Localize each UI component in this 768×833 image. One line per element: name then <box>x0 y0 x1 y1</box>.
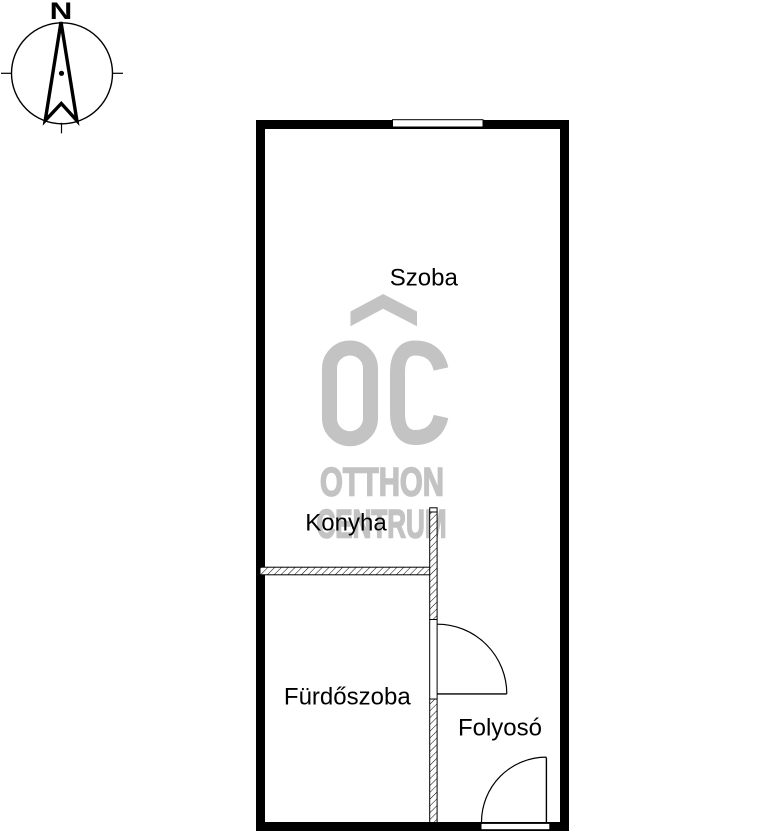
svg-text:OTTHON: OTTHON <box>320 461 444 505</box>
svg-text:N: N <box>50 0 73 25</box>
svg-text:Folyosó: Folyosó <box>458 715 542 742</box>
svg-text:Szoba: Szoba <box>390 264 459 291</box>
svg-text:Konyha: Konyha <box>305 509 387 536</box>
svg-text:Fürdőszoba: Fürdőszoba <box>284 684 411 711</box>
